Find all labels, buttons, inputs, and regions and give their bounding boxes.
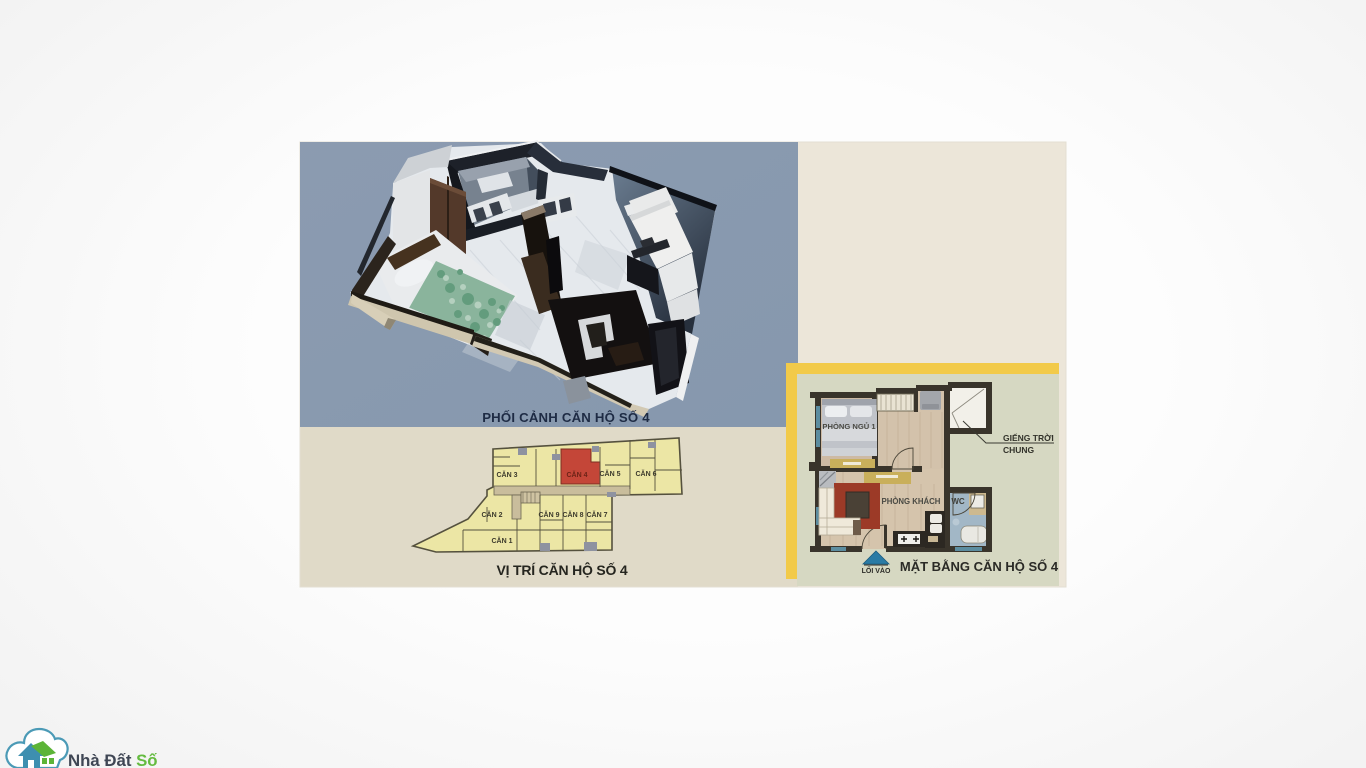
svg-text:CĂN 9: CĂN 9 [538,510,559,519]
svg-text:PHỐI CẢNH CĂN HỘ SỐ 4: PHỐI CẢNH CĂN HỘ SỐ 4 [482,410,650,425]
svg-text:GIẾNG TRỜI: GIẾNG TRỜI [1003,432,1054,443]
svg-text:CĂN 8: CĂN 8 [562,510,583,519]
svg-text:CĂN 6: CĂN 6 [635,469,656,478]
svg-text:VỊ TRÍ CĂN HỘ SỐ 4: VỊ TRÍ CĂN HỘ SỐ 4 [497,561,628,578]
svg-text:CĂN 1: CĂN 1 [491,536,512,545]
svg-text:WC: WC [951,497,965,506]
svg-text:PHÒNG NGỦ 1: PHÒNG NGỦ 1 [822,422,876,431]
svg-text:PHÒNG KHÁCH: PHÒNG KHÁCH [882,497,941,506]
svg-text:CĂN 5: CĂN 5 [599,469,620,478]
svg-text:CĂN 3: CĂN 3 [496,470,517,479]
svg-text:CĂN 2: CĂN 2 [481,510,502,519]
svg-text:CĂN 7: CĂN 7 [586,510,607,519]
svg-text:MẶT BẰNG CĂN HỘ SỐ 4: MẶT BẰNG CĂN HỘ SỐ 4 [900,559,1059,574]
svg-text:CHUNG: CHUNG [1003,445,1035,455]
svg-text:Nhà Đất Số: Nhà Đất Số [68,751,158,768]
svg-text:CĂN 4: CĂN 4 [566,470,587,479]
